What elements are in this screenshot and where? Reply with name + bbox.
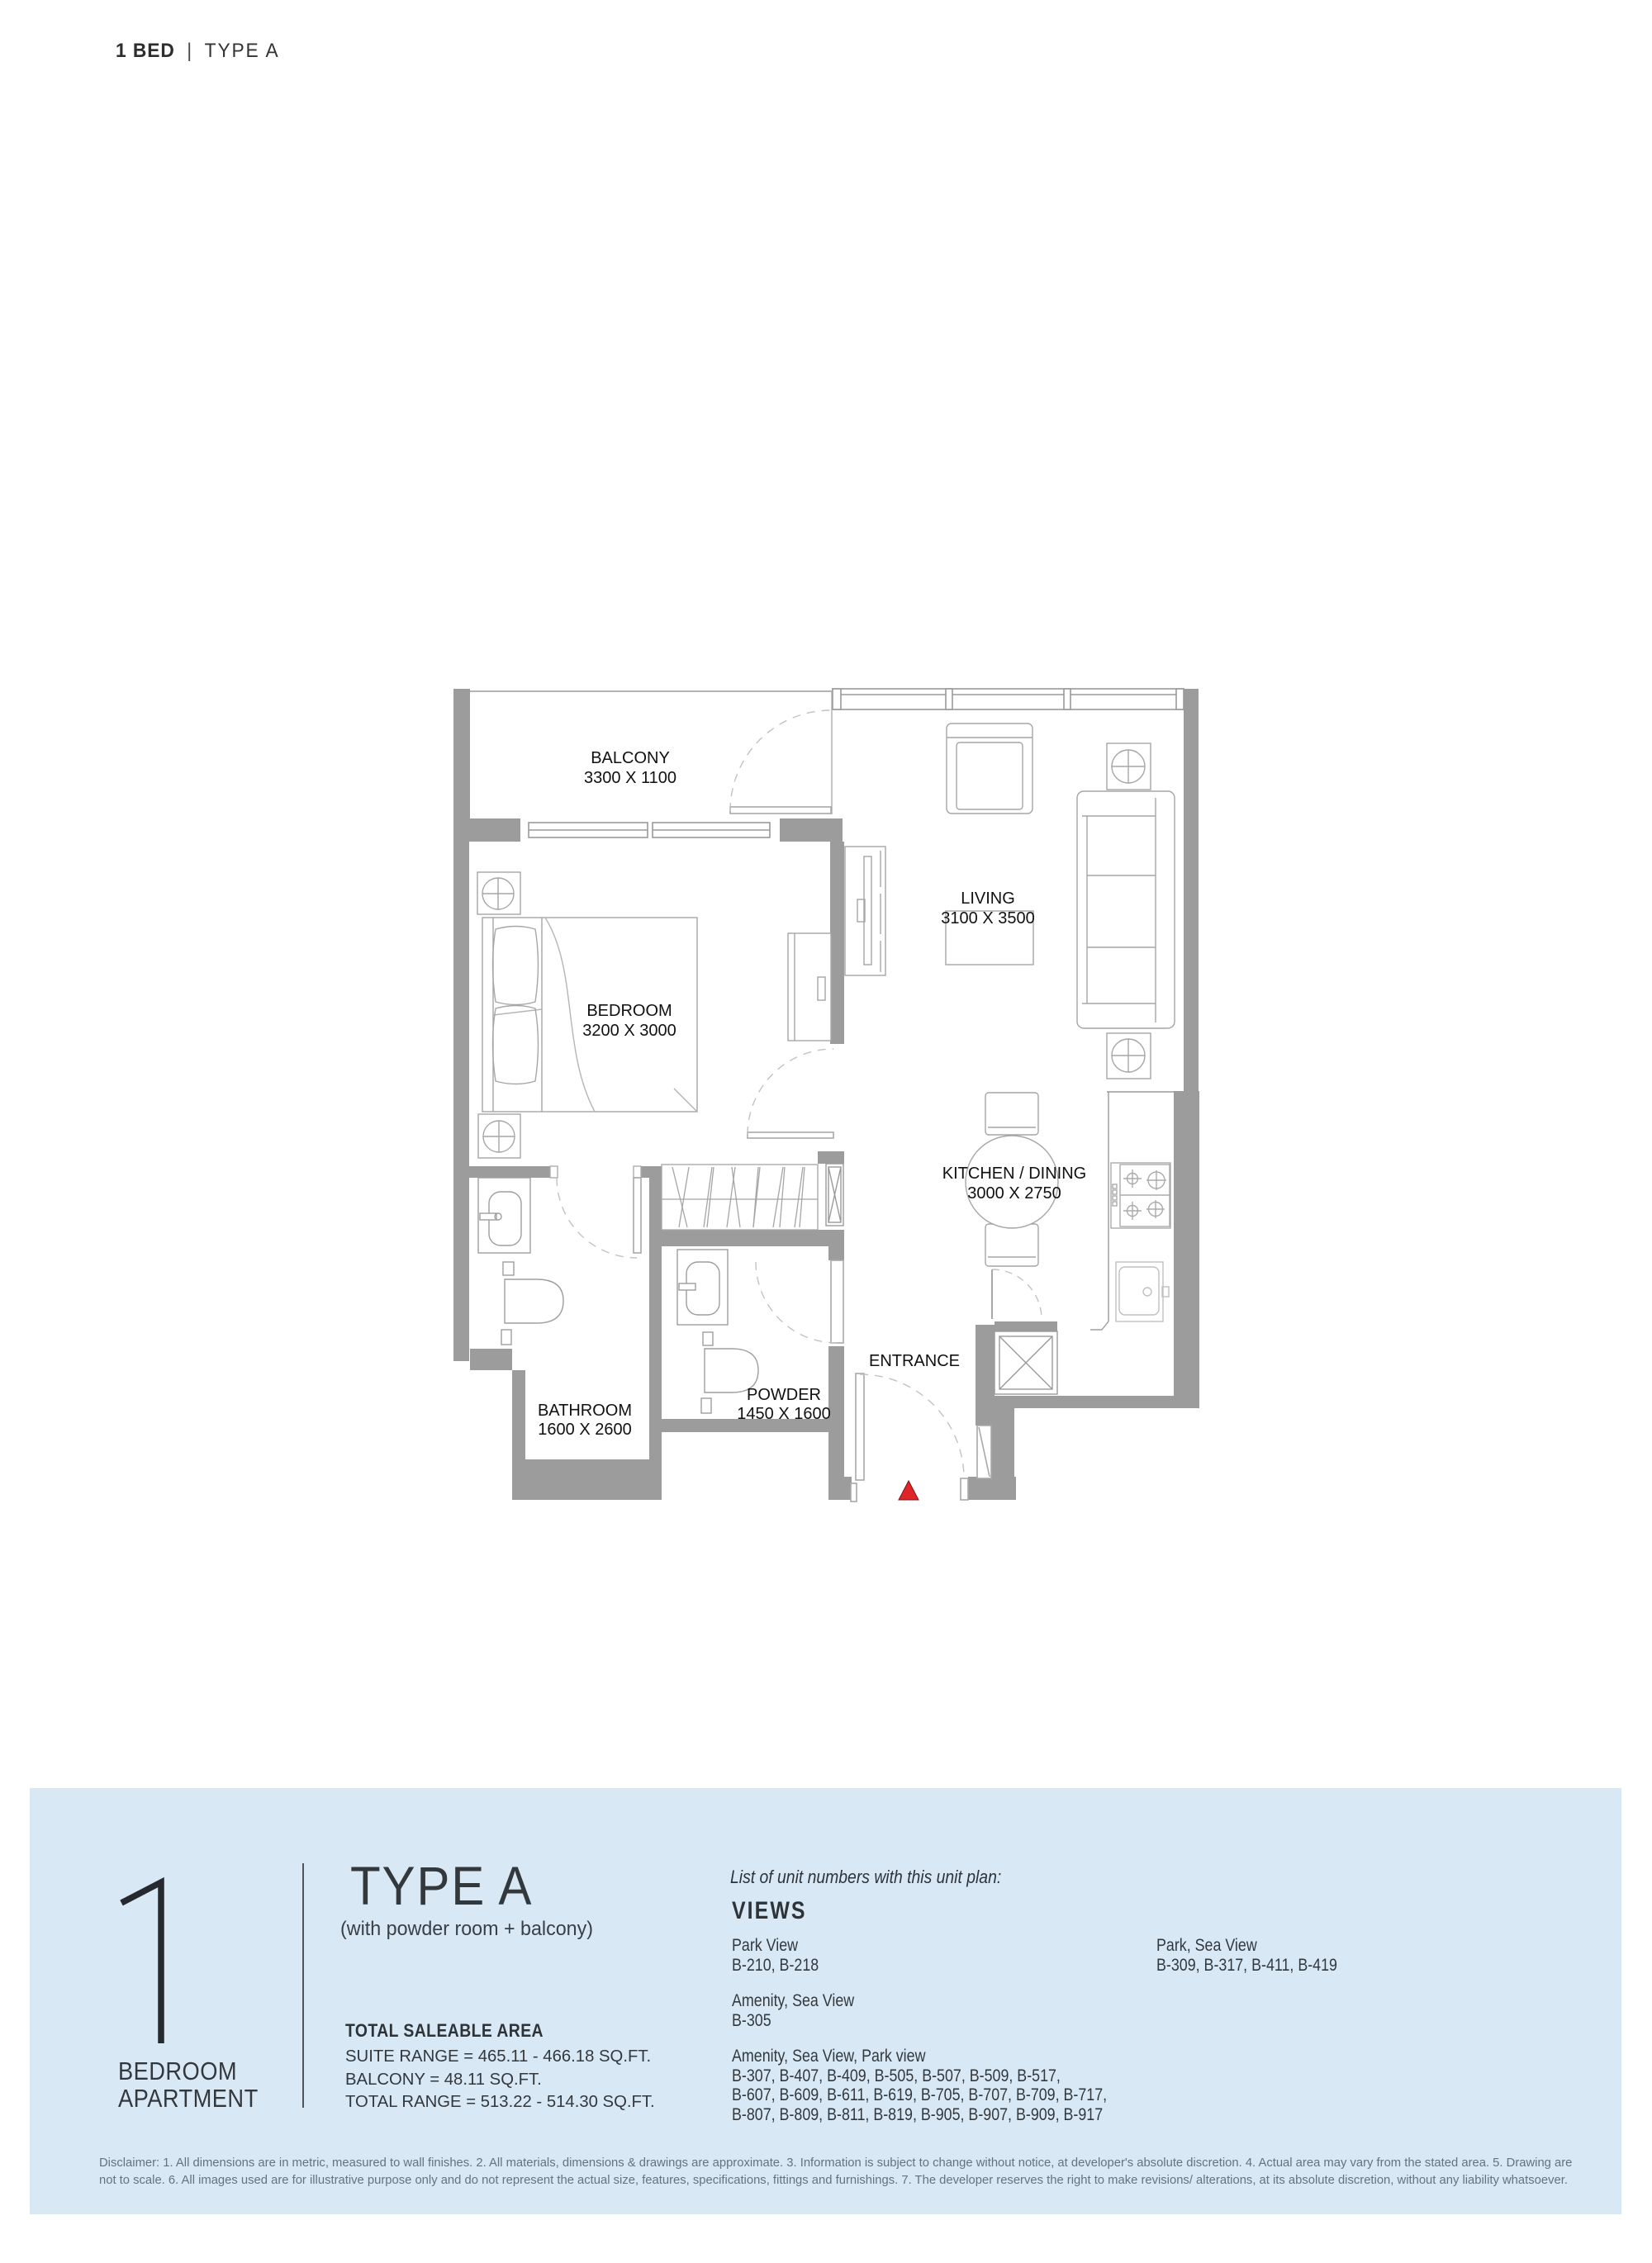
svg-text:KITCHEN / DINING: KITCHEN / DINING xyxy=(942,1165,1086,1183)
svg-text:3200 X 3000: 3200 X 3000 xyxy=(582,1022,676,1040)
svg-text:BALCONY: BALCONY xyxy=(591,749,670,767)
svg-text:POWDER: POWDER xyxy=(747,1386,821,1404)
svg-text:ENTRANCE: ENTRANCE xyxy=(869,1352,960,1370)
svg-text:BEDROOM: BEDROOM xyxy=(586,1002,672,1020)
svg-text:1600 X 2600: 1600 X 2600 xyxy=(538,1421,631,1439)
svg-text:LIVING: LIVING xyxy=(961,890,1015,908)
svg-text:3000 X 2750: 3000 X 2750 xyxy=(967,1184,1061,1203)
svg-text:3100 X 3500: 3100 X 3500 xyxy=(941,909,1034,927)
svg-text:BATHROOM: BATHROOM xyxy=(538,1402,632,1420)
svg-text:3300 X 1100: 3300 X 1100 xyxy=(584,769,676,787)
svg-text:1450 X 1600: 1450 X 1600 xyxy=(737,1405,830,1423)
